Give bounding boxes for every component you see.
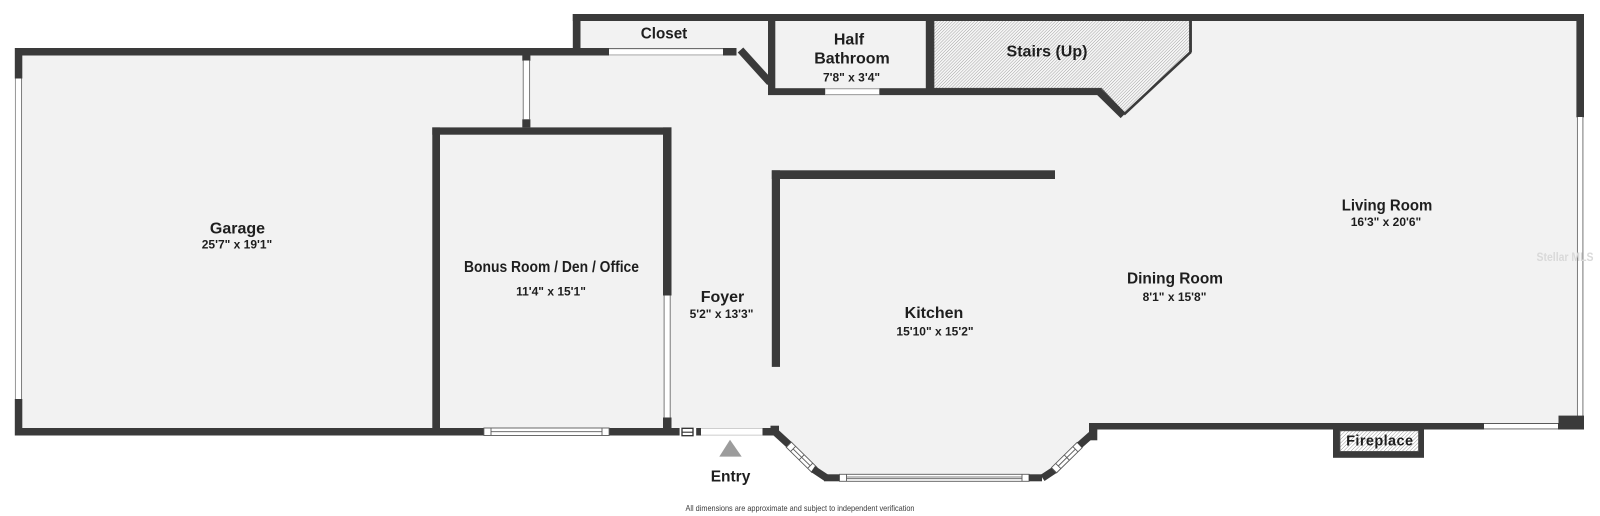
svg-text:25'7" x 19'1": 25'7" x 19'1" xyxy=(202,238,272,252)
svg-text:Stellar MLS: Stellar MLS xyxy=(1537,250,1594,264)
svg-text:Half: Half xyxy=(834,32,865,49)
svg-text:Entry: Entry xyxy=(711,469,751,486)
svg-text:15'10" x 15'2": 15'10" x 15'2" xyxy=(896,325,973,339)
svg-text:11'4" x 15'1": 11'4" x 15'1" xyxy=(516,285,586,299)
svg-text:Living Room: Living Room xyxy=(1342,198,1433,215)
svg-text:Bathroom: Bathroom xyxy=(814,51,890,68)
svg-text:Foyer: Foyer xyxy=(701,289,745,306)
svg-text:8'1" x 15'8": 8'1" x 15'8" xyxy=(1143,290,1207,304)
svg-text:All dimensions are approximate: All dimensions are approximate and subje… xyxy=(686,504,915,513)
svg-text:5'2" x 13'3": 5'2" x 13'3" xyxy=(690,307,754,321)
svg-text:Stairs (Up): Stairs (Up) xyxy=(1007,44,1088,61)
svg-text:Bonus Room / Den / Office: Bonus Room / Den / Office xyxy=(464,259,639,276)
svg-text:16'3" x 20'6": 16'3" x 20'6" xyxy=(1351,215,1421,229)
svg-text:Closet: Closet xyxy=(641,26,688,43)
svg-text:7'8" x 3'4": 7'8" x 3'4" xyxy=(823,71,880,85)
svg-text:Dining Room: Dining Room xyxy=(1127,271,1223,288)
svg-text:Garage: Garage xyxy=(210,221,265,238)
svg-text:Kitchen: Kitchen xyxy=(905,305,964,322)
svg-text:Fireplace: Fireplace xyxy=(1346,434,1413,450)
